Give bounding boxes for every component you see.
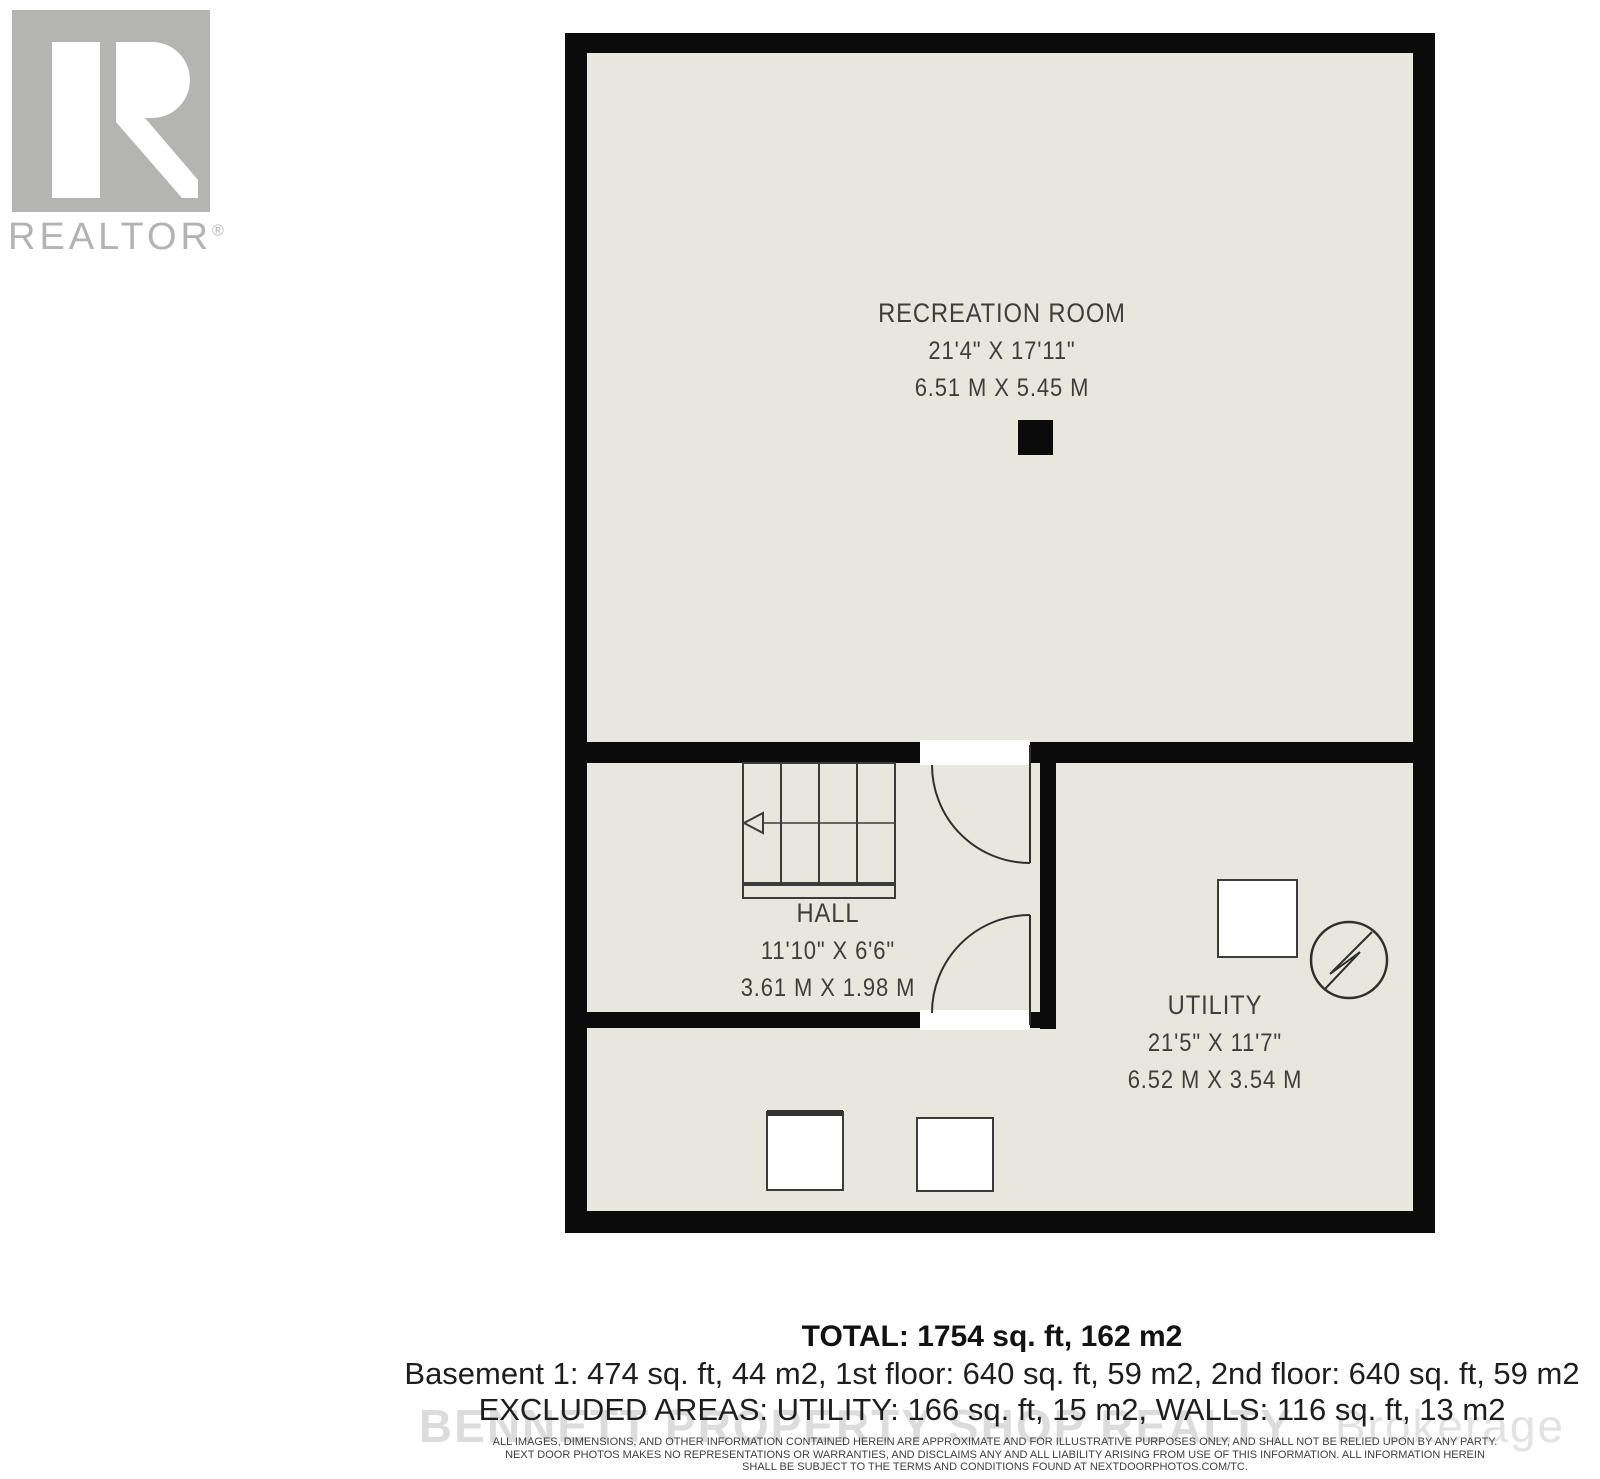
appliance-left — [767, 1112, 843, 1190]
wall-left — [565, 33, 587, 1233]
appliance-right — [917, 1118, 993, 1191]
room-dimensions-metric: 6.52 M X 3.54 M — [1039, 1066, 1391, 1095]
floorplan-page: REALTOR® — [0, 0, 1600, 1479]
room-name: RECREATION ROOM — [826, 298, 1178, 329]
room-name: HALL — [652, 898, 1004, 929]
wall-bottom — [565, 1211, 1435, 1233]
wall-right — [1413, 33, 1435, 1233]
room-label-recreation: RECREATION ROOM 21'4" X 17'11" 6.51 M X … — [802, 298, 1202, 403]
support-column — [1018, 420, 1053, 455]
registered-mark: ® — [212, 222, 224, 239]
stair-landing — [743, 885, 895, 898]
disclaimer-line-2: NEXT DOOR PHOTOS MAKES NO REPRESENTATION… — [300, 1449, 1600, 1462]
room-name: UTILITY — [1039, 990, 1391, 1021]
logo-brand: REALTOR — [8, 216, 212, 258]
disclaimer-line-3: SHALL BE SUBJECT TO THE TERMS AND CONDIT… — [300, 1461, 1600, 1474]
excluded-areas-text: EXCLUDED AREAS: UTILITY: 166 sq. ft, 15 … — [384, 1392, 1600, 1428]
disclaimer: ALL IMAGES, DIMENSIONS, AND OTHER INFORM… — [300, 1436, 1600, 1474]
logo-r-stem — [52, 42, 100, 198]
floor-areas-text: Basement 1: 474 sq. ft, 44 m2, 1st floor… — [384, 1356, 1600, 1392]
room-dimensions-imperial: 21'5" X 11'7" — [1039, 1029, 1391, 1058]
disclaimer-line-1: ALL IMAGES, DIMENSIONS, AND OTHER INFORM… — [300, 1436, 1600, 1449]
door-opening-upper — [920, 740, 1030, 765]
room-dimensions-metric: 6.51 M X 5.45 M — [826, 374, 1178, 403]
wall-hall-utility — [1040, 742, 1056, 1029]
staircase-icon — [743, 763, 895, 898]
logo-wordmark: REALTOR® — [8, 216, 268, 259]
realtor-logo-icon — [12, 10, 210, 212]
room-dimensions-imperial: 21'4" X 17'11" — [826, 337, 1178, 366]
room-label-hall: HALL 11'10" X 6'6" 3.61 M X 1.98 M — [628, 898, 1028, 1003]
door-opening-lower — [920, 1010, 1030, 1030]
total-area-text: TOTAL: 1754 sq. ft, 162 m2 — [384, 1320, 1600, 1354]
room-dimensions-imperial: 11'10" X 6'6" — [652, 937, 1004, 966]
utility-box — [1218, 880, 1297, 957]
room-label-utility: UTILITY 21'5" X 11'7" 6.52 M X 3.54 M — [1015, 990, 1415, 1095]
appliance-left-icon — [767, 1112, 843, 1190]
wall-top — [565, 33, 1435, 53]
room-dimensions-metric: 3.61 M X 1.98 M — [652, 974, 1004, 1003]
